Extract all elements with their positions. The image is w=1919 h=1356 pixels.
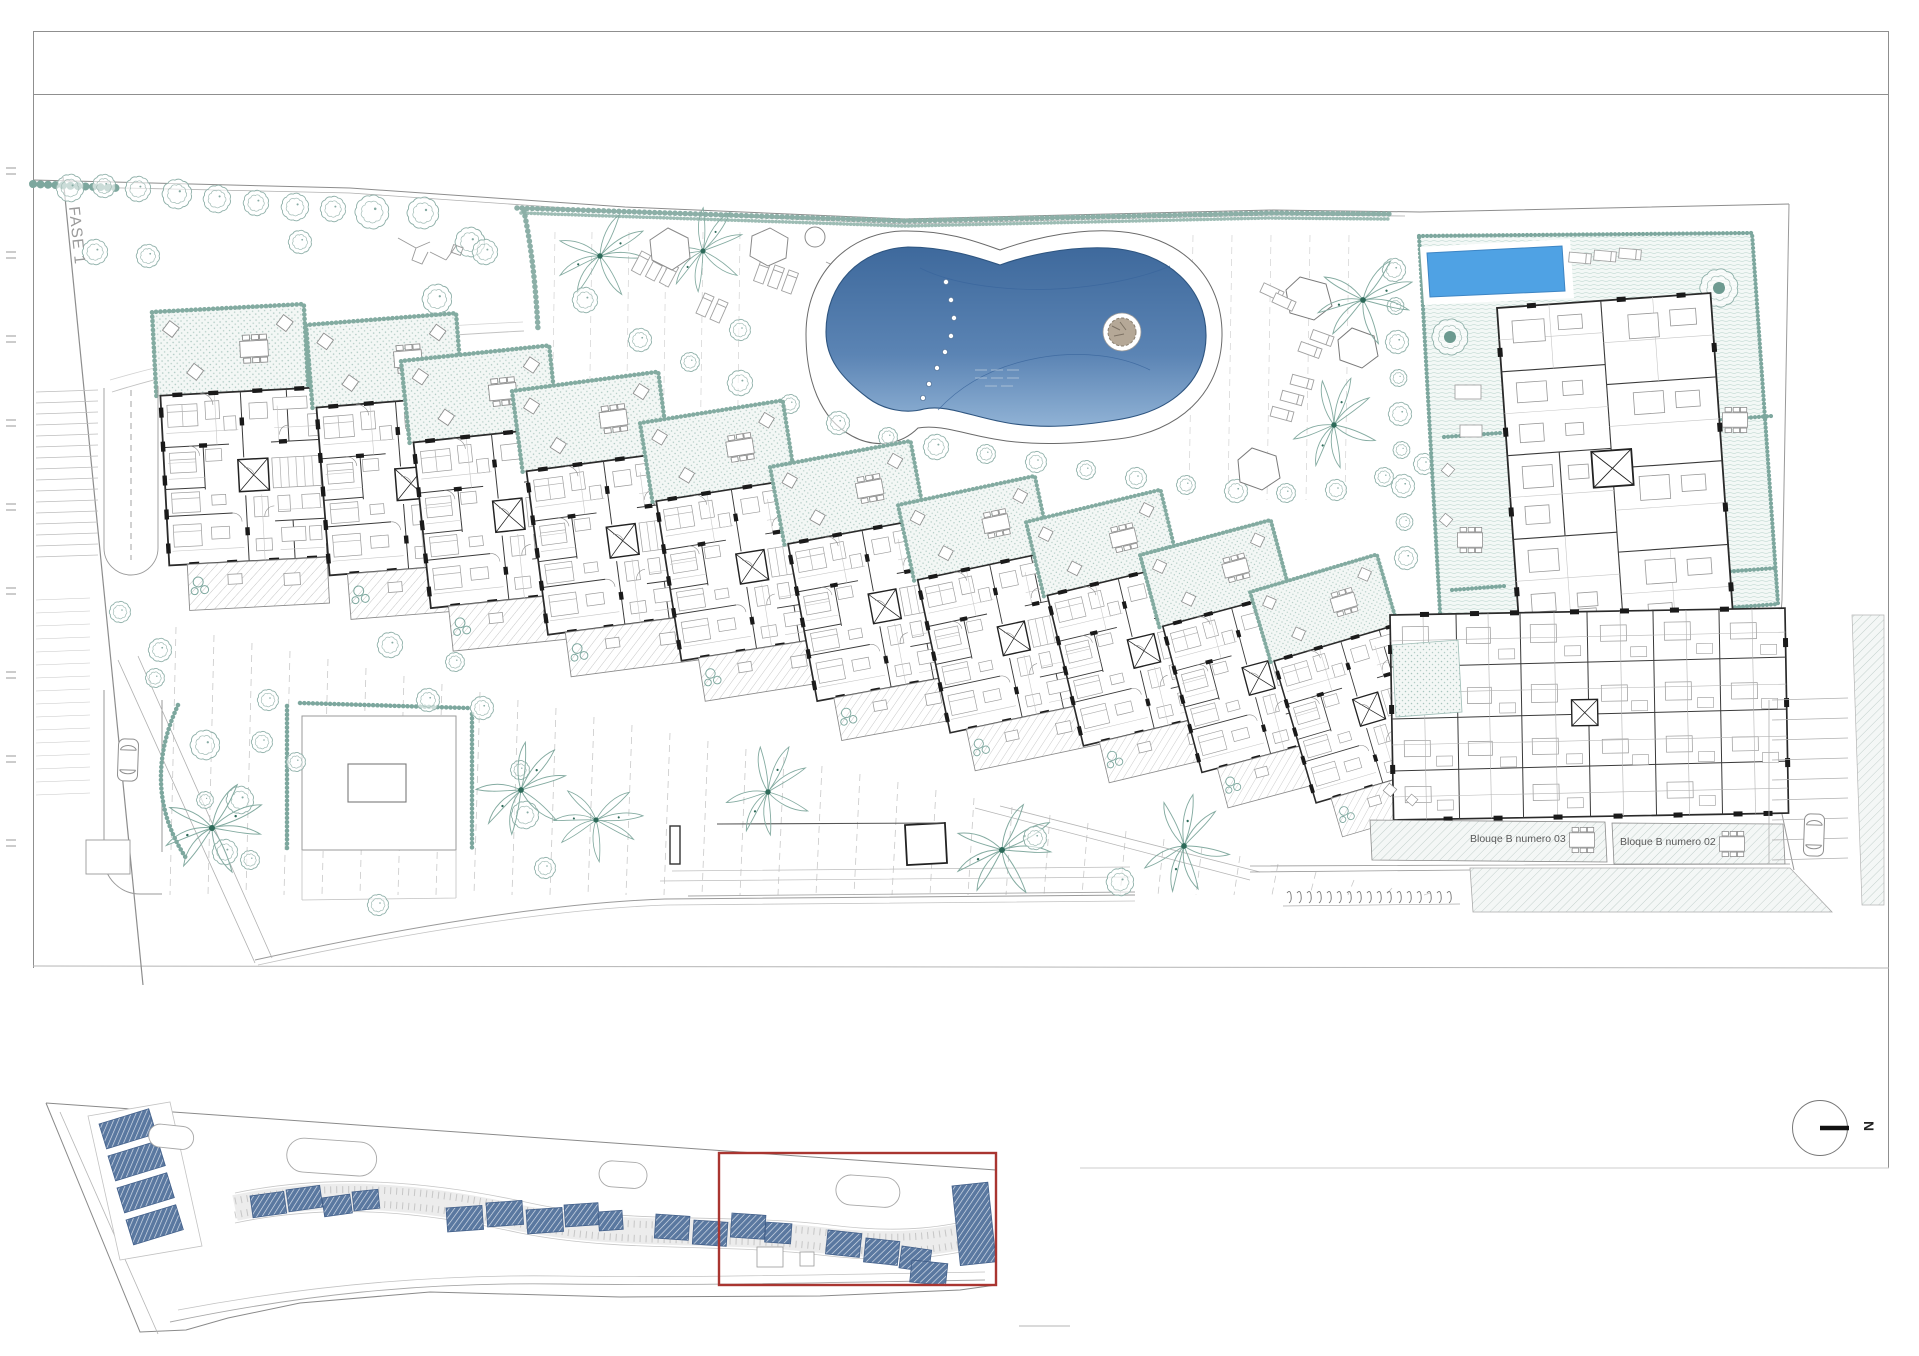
svg-text:Bloque B numero 02: Bloque B numero 02 — [1620, 836, 1716, 848]
svg-text:Blouqe B numero 03: Blouqe B numero 03 — [1470, 833, 1566, 845]
svg-text:N: N — [1861, 1121, 1877, 1131]
